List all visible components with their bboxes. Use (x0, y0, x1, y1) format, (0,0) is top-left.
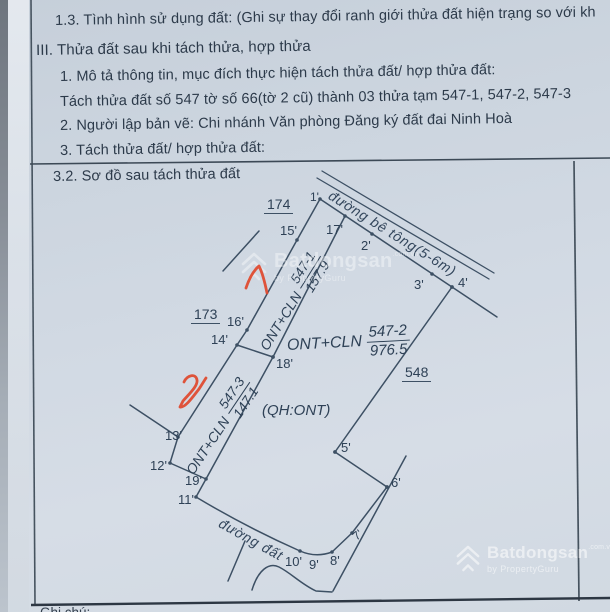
point-label-10: 10' (285, 554, 302, 569)
parcel-547-2-annotation: ONT+CLN 547-2 976.5 (286, 323, 410, 364)
footer-note-partial: Ghi chú: (40, 605, 90, 612)
planning-note: (QH:ONT) (262, 402, 330, 419)
point-label-8: 8' (330, 553, 340, 568)
point-label-6: 6' (391, 475, 401, 490)
handwritten-mark-2 (180, 376, 206, 407)
stub-174-173 (223, 231, 259, 271)
doc-line-2: III. Thửa đất sau khi tách thửa, hợp thử… (36, 38, 311, 59)
point-label-16: 16' (227, 314, 244, 329)
concrete-road-label: đường bê tông(5-6m) (326, 187, 460, 279)
doc-line-1: 1.3. Tình hình sử dụng đất: (Ghi sự thay… (55, 5, 596, 29)
road-far-edge-1 (322, 171, 494, 273)
dirt-road-label: đường đất (216, 515, 286, 564)
section-title: 3.2. Sơ đồ sau tách thửa đất (53, 166, 241, 185)
scanned-document-photo: 1.3. Tình hình sử dụng đất: (Ghi sự thay… (0, 0, 610, 612)
neighbor-parcel-173: 173 (191, 306, 220, 324)
point-label-15: 15' (280, 223, 297, 238)
photo-left-edge-shadow (0, 0, 8, 612)
parcel-547-2-landuse: ONT+CLN (287, 333, 363, 355)
boundary-top (320, 199, 452, 287)
neighbor-parcel-548: 548 (402, 364, 431, 382)
doc-line-3: 1. Mô tả thông tin, mục đích thực hiện t… (60, 62, 496, 85)
doc-line-6: 3. Tách thửa đất/ hợp thửa đất: (60, 140, 265, 159)
batdongsan-logo-icon (455, 544, 481, 572)
doc-line-4: Tách thửa đất số 547 tờ số 66(tờ 2 cũ) t… (60, 86, 571, 110)
point-label-11: 11' (178, 492, 194, 507)
parcel-547-2-area: 976.5 (369, 340, 407, 359)
point-label-2: 2' (361, 238, 371, 253)
point-label-4: 4' (458, 275, 468, 290)
point-label-13: 13' (165, 428, 182, 443)
stub-below-11 (228, 541, 245, 581)
point-label-5: 5' (341, 440, 351, 455)
watermark-brand: Batdongsan (487, 543, 588, 562)
handwritten-mark-1 (246, 266, 267, 293)
point-label-12: 12' (150, 458, 167, 473)
point-label-14: 14' (211, 332, 228, 347)
doc-line-5: 2. Người lập bản vẽ: Chi nhánh Văn phòng… (60, 111, 512, 134)
watermark-domain: .com.vn (588, 544, 610, 551)
dirt-road-far-edge (252, 566, 332, 592)
batdongsan-logo-icon (240, 251, 268, 281)
watermark-bottom-right: Batdongsan.com.vn by PropertyGuru (455, 544, 610, 576)
point-label-9: 9' (309, 557, 319, 572)
neighbor-parcel-174: 174 (264, 196, 293, 214)
road-continuation (452, 287, 497, 317)
parcel-547-3-annotation: ONT+CLN 547-3 147.1 (176, 373, 263, 481)
point-label-17: 17' (326, 222, 343, 237)
point-label-1: 1' (310, 190, 319, 204)
parcel-547-2-id: 547-2 (366, 323, 409, 343)
paper-left-margin (8, 0, 29, 612)
parcel-547-3-landuse: ONT+CLN (182, 414, 232, 477)
point-label-3: 3' (414, 277, 424, 292)
point-label-7: 7' (350, 527, 366, 543)
watermark-byline: by PropertyGuru (487, 563, 610, 576)
